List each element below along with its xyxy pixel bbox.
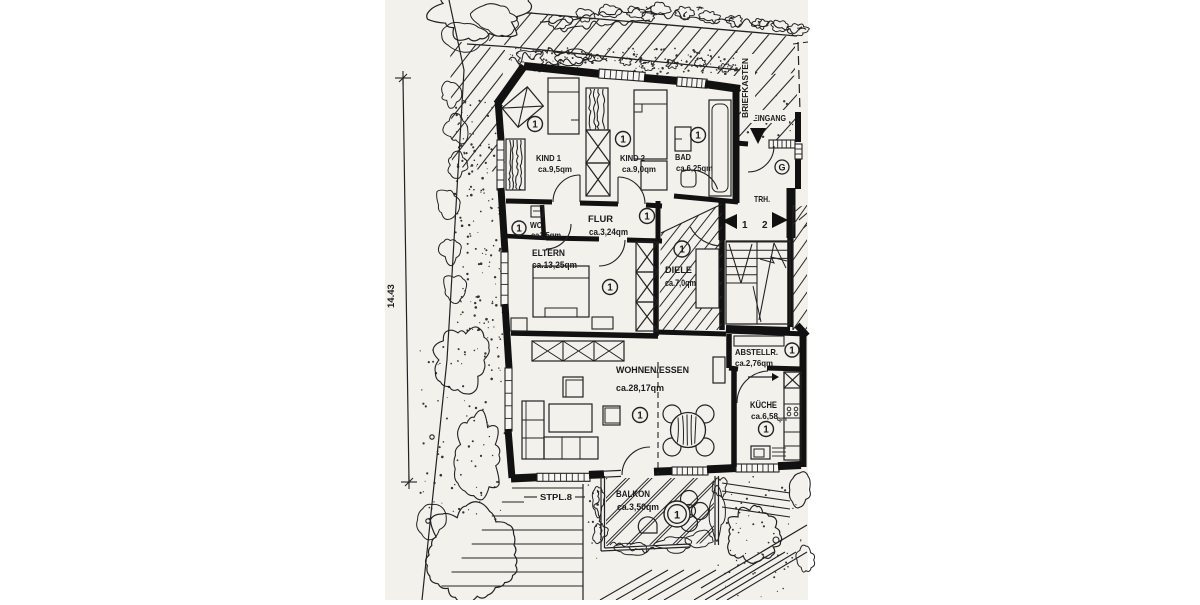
svg-text:1: 1 [695, 131, 701, 142]
svg-text:1: 1 [789, 346, 795, 357]
svg-text:ABSTELLR.: ABSTELLR. [735, 348, 778, 357]
svg-text:ELTERN: ELTERN [532, 248, 565, 258]
svg-text:ca.9,0qm: ca.9,0qm [622, 164, 656, 174]
svg-text:EINGANG: EINGANG [753, 114, 786, 123]
svg-text:ca.2,76qm: ca.2,76qm [735, 359, 773, 368]
svg-text:ca.3,50qm: ca.3,50qm [617, 502, 659, 512]
svg-text:FLUR: FLUR [588, 214, 614, 224]
svg-text:G: G [778, 163, 785, 173]
svg-text:1: 1 [607, 283, 613, 294]
svg-text:WOHNEN/ESSEN: WOHNEN/ESSEN [616, 365, 689, 375]
svg-text:1: 1 [644, 212, 650, 223]
svg-text:ca.7,0qm: ca.7,0qm [665, 278, 696, 288]
svg-text:KIND 2: KIND 2 [620, 153, 645, 163]
svg-text:ca.9,5qm: ca.9,5qm [538, 164, 572, 174]
svg-text:ca.6,58: ca.6,58 [751, 411, 778, 421]
svg-text:1: 1 [679, 245, 685, 256]
svg-text:ca.6,25qm: ca.6,25qm [676, 163, 713, 173]
svg-text:STPL.8: STPL.8 [540, 492, 572, 502]
svg-text:1: 1 [763, 425, 769, 436]
svg-text:ca1,5qm: ca1,5qm [531, 231, 561, 240]
svg-text:1: 1 [620, 135, 626, 146]
svg-text:DIELE: DIELE [665, 265, 692, 275]
svg-text:1: 1 [742, 220, 748, 231]
svg-text:1: 1 [516, 224, 522, 235]
svg-text:BALKON: BALKON [616, 489, 650, 499]
svg-text:ca.13,25qm: ca.13,25qm [532, 260, 577, 270]
svg-text:ca.28,17qm: ca.28,17qm [616, 383, 664, 393]
svg-text:BRIEFKASTEN: BRIEFKASTEN [741, 58, 750, 118]
svg-text:ca.3,24qm: ca.3,24qm [589, 227, 628, 237]
svg-text:TRH.: TRH. [754, 194, 770, 204]
svg-text:WC: WC [530, 220, 542, 230]
svg-text:BAD: BAD [675, 152, 691, 162]
svg-text:14.43: 14.43 [386, 284, 397, 308]
svg-text:1: 1 [674, 510, 680, 522]
svg-text:1: 1 [637, 411, 643, 422]
svg-text:qm: qm [777, 416, 787, 423]
svg-text:KÜCHE: KÜCHE [750, 400, 777, 410]
svg-text:KIND 1: KIND 1 [536, 153, 561, 163]
svg-text:1: 1 [532, 120, 538, 131]
svg-text:2: 2 [762, 220, 768, 231]
